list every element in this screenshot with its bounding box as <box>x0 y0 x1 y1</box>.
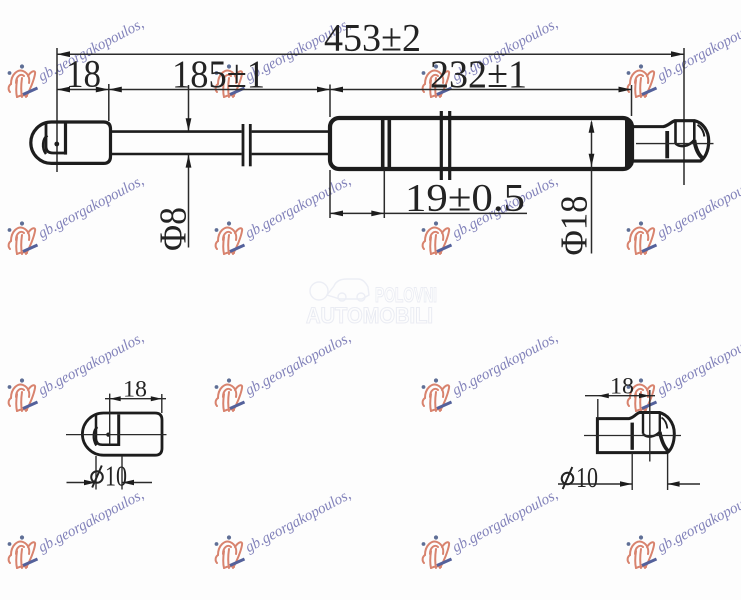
svg-text:453±2: 453±2 <box>324 17 421 60</box>
svg-text:18: 18 <box>123 376 147 401</box>
svg-text:gb.georgakopoulos,: gb.georgakopoulos, <box>449 486 560 556</box>
svg-text:Φ18: Φ18 <box>554 196 596 256</box>
svg-text:gb.georgakopoulos,: gb.georgakopoulos, <box>654 486 741 556</box>
svg-text:gb.georgakopoulos,: gb.georgakopoulos, <box>242 172 353 242</box>
svg-text:gb.georgakopoulos,: gb.georgakopoulos, <box>242 486 353 556</box>
svg-text:gb.georgakopoulos,: gb.georgakopoulos, <box>654 329 741 399</box>
svg-text:10: 10 <box>105 462 127 493</box>
svg-text:18: 18 <box>610 373 634 398</box>
svg-text:Φ8: Φ8 <box>153 207 195 251</box>
svg-text:AUTOMOBILI: AUTOMOBILI <box>306 303 433 328</box>
svg-text:gb.georgakopoulos,: gb.georgakopoulos, <box>654 15 741 85</box>
svg-text:10: 10 <box>576 463 598 494</box>
svg-text:gb.georgakopoulos,: gb.georgakopoulos, <box>35 172 146 242</box>
svg-text:gb.georgakopoulos,: gb.georgakopoulos, <box>449 329 560 399</box>
svg-text:18: 18 <box>66 53 101 96</box>
svg-text:185±1: 185±1 <box>172 53 265 96</box>
svg-text:19±0.5: 19±0.5 <box>405 177 525 220</box>
svg-text:gb.georgakopoulos,: gb.georgakopoulos, <box>35 486 146 556</box>
svg-text:232±1: 232±1 <box>430 53 527 96</box>
svg-text:gb.georgakopoulos,: gb.georgakopoulos, <box>242 329 353 399</box>
svg-text:gb.georgakopoulos,: gb.georgakopoulos, <box>654 172 741 242</box>
